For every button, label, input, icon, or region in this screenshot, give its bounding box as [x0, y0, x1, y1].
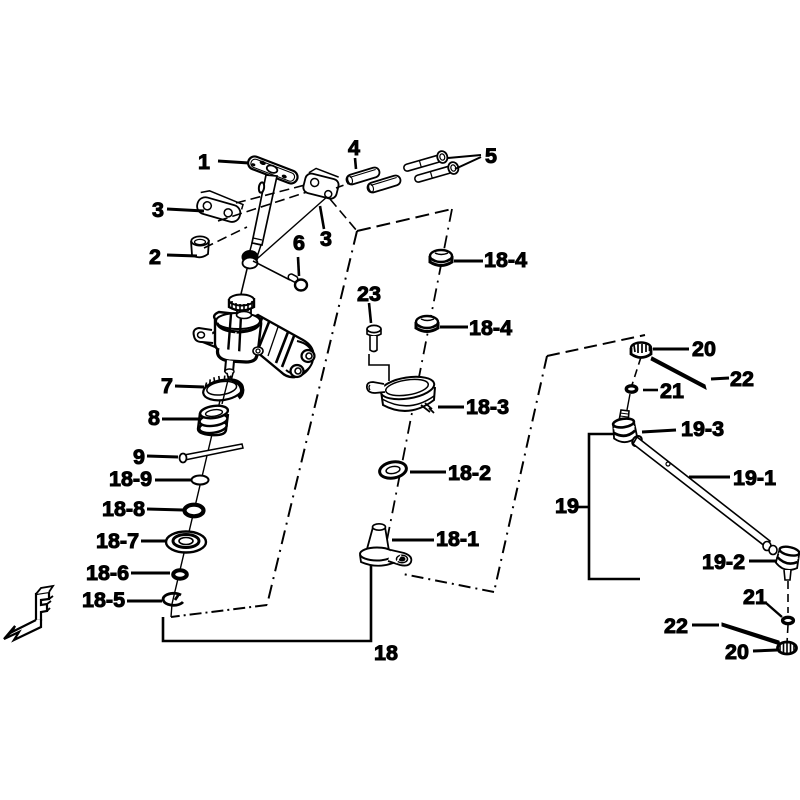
svg-text:22: 22	[664, 614, 688, 638]
svg-text:19-3: 19-3	[681, 417, 724, 441]
svg-text:1: 1	[198, 150, 210, 174]
svg-text:18-7: 18-7	[96, 529, 139, 553]
svg-text:3: 3	[320, 227, 332, 251]
svg-text:18: 18	[374, 641, 398, 665]
svg-text:5: 5	[485, 144, 497, 168]
svg-text:7: 7	[161, 374, 173, 398]
svg-text:4: 4	[348, 136, 360, 160]
svg-text:18-1: 18-1	[436, 527, 479, 551]
svg-text:3: 3	[152, 198, 164, 222]
svg-text:18-9: 18-9	[109, 467, 152, 491]
svg-text:18-5: 18-5	[82, 588, 125, 612]
svg-text:18-8: 18-8	[102, 497, 145, 521]
svg-text:21: 21	[660, 379, 684, 403]
svg-text:18-6: 18-6	[86, 561, 129, 585]
svg-text:21: 21	[743, 585, 767, 609]
svg-text:23: 23	[357, 282, 381, 306]
svg-text:22: 22	[730, 367, 754, 391]
svg-text:19-1: 19-1	[733, 466, 776, 490]
svg-text:20: 20	[692, 337, 716, 361]
svg-text:20: 20	[725, 640, 749, 664]
svg-text:18-4: 18-4	[484, 248, 527, 272]
svg-text:18-4: 18-4	[469, 316, 512, 340]
svg-text:6: 6	[293, 231, 305, 255]
svg-text:2: 2	[149, 245, 161, 269]
svg-text:8: 8	[148, 406, 160, 430]
svg-text:19: 19	[555, 494, 579, 518]
svg-text:18-2: 18-2	[448, 461, 491, 485]
svg-text:19-2: 19-2	[702, 550, 745, 574]
svg-text:9: 9	[133, 445, 145, 469]
svg-text:18-3: 18-3	[466, 395, 509, 419]
